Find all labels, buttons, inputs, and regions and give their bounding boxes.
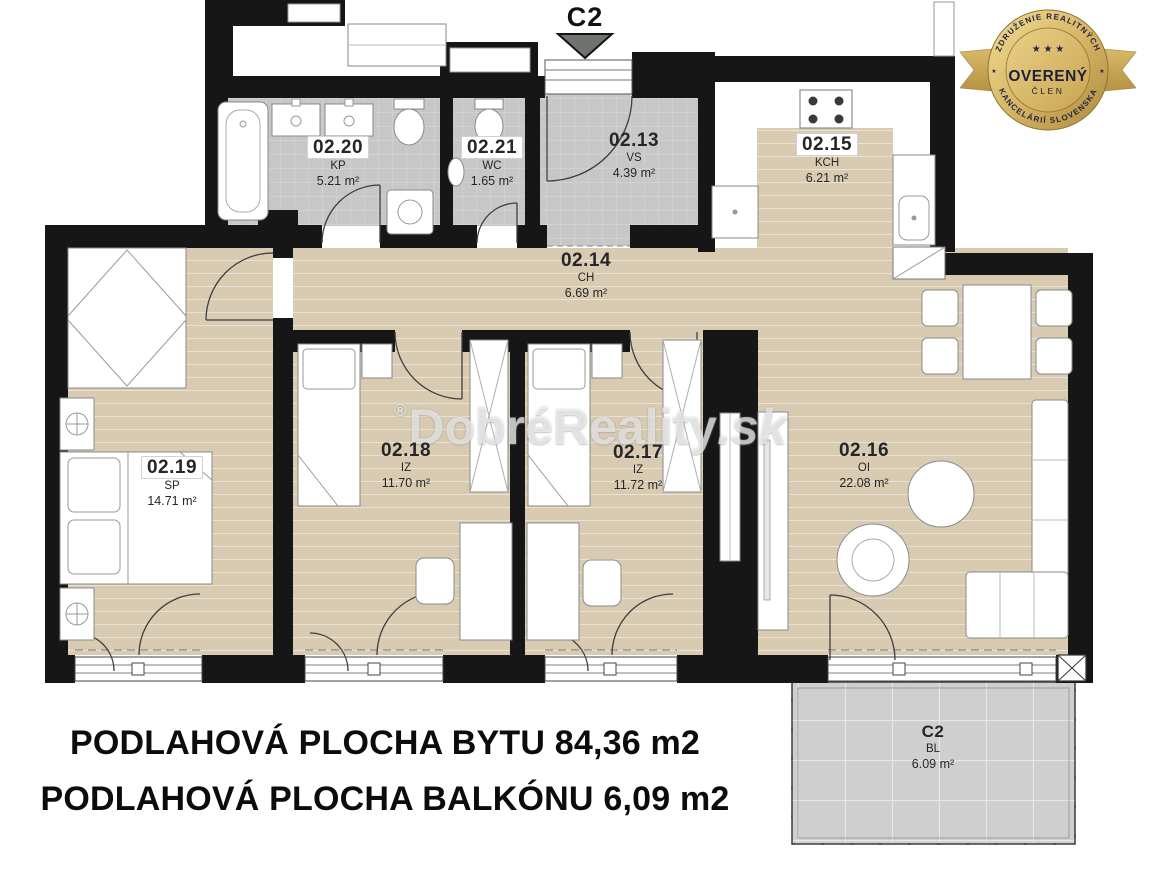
room-label-02-18: 02.18 IZ 11.70 m² <box>346 440 466 490</box>
room-type: KP <box>278 160 398 173</box>
entrance-marker-label: C2 <box>553 2 617 33</box>
watermark-suffix: .sk <box>717 399 787 455</box>
watermark-reg-icon: ® <box>394 401 407 420</box>
badge-left-star-icon: ★ <box>991 68 996 75</box>
room-area: 1.65 m² <box>432 174 552 188</box>
badge-title: OVERENÝ <box>1008 67 1087 85</box>
badge-subtitle: ČLEN <box>1032 86 1065 96</box>
summary-flat-area: PODLAHOVÁ PLOCHA BYTU 84,36 m2 <box>30 724 740 763</box>
room-type: IZ <box>578 464 698 477</box>
room-label-02-20: 02.20 KP 5.21 m² <box>278 136 398 188</box>
room-type: OI <box>804 462 924 475</box>
floor-plan-page: ®DobréReality.sk C2 02.20 KP 5.21 m² 02.… <box>0 0 1149 892</box>
verified-badge: ZDRUŽENIE REALITNÝCH KANCELÁRIÍ SLOVENSK… <box>948 0 1148 145</box>
badge-right-star-icon: ★ <box>1099 68 1104 75</box>
room-area: 11.72 m² <box>578 478 698 492</box>
room-code: 02.19 <box>141 456 203 479</box>
room-area: 22.08 m² <box>804 476 924 490</box>
room-area: 6.21 m² <box>767 171 887 185</box>
room-label-02-14: 02.14 CH 6.69 m² <box>526 250 646 300</box>
room-type: IZ <box>346 462 466 475</box>
badge-stars-icon: ★ ★ ★ <box>1032 44 1064 55</box>
room-code: 02.18 <box>381 440 431 461</box>
summary-balcony-area: PODLAHOVÁ PLOCHA BALKÓNU 6,09 m2 <box>30 780 740 819</box>
room-label-02-17: 02.17 IZ 11.72 m² <box>578 442 698 492</box>
room-area: 6.09 m² <box>873 757 993 771</box>
room-code: 02.14 <box>561 250 611 271</box>
room-type: CH <box>526 272 646 285</box>
room-area: 14.71 m² <box>112 494 232 508</box>
room-code: 02.17 <box>613 442 663 463</box>
entrance-arrow-icon <box>558 34 612 58</box>
room-code: 02.20 <box>307 136 369 159</box>
room-label-02-13: 02.13 VS 4.39 m² <box>574 130 694 180</box>
room-area: 4.39 m² <box>574 166 694 180</box>
room-code: C2 <box>922 722 945 741</box>
area-summary: PODLAHOVÁ PLOCHA BYTU 84,36 m2 PODLAHOVÁ… <box>30 724 740 819</box>
room-code: 02.13 <box>609 130 659 151</box>
room-type: VS <box>574 152 694 165</box>
room-code: 02.16 <box>839 440 889 461</box>
room-area: 11.70 m² <box>346 476 466 490</box>
room-area: 5.21 m² <box>278 174 398 188</box>
room-code: 02.21 <box>461 136 523 159</box>
room-type: BL <box>873 743 993 756</box>
room-code: 02.15 <box>796 133 858 156</box>
room-type: KCH <box>767 157 887 170</box>
room-label-02-19: 02.19 SP 14.71 m² <box>112 456 232 508</box>
room-area: 6.69 m² <box>526 286 646 300</box>
room-label-02-16: 02.16 OI 22.08 m² <box>804 440 924 490</box>
room-type: SP <box>112 480 232 493</box>
room-label-02-15: 02.15 KCH 6.21 m² <box>767 133 887 185</box>
room-label-02-21: 02.21 WC 1.65 m² <box>432 136 552 188</box>
room-type: WC <box>432 160 552 173</box>
balcony-label: C2 BL 6.09 m² <box>873 722 993 771</box>
